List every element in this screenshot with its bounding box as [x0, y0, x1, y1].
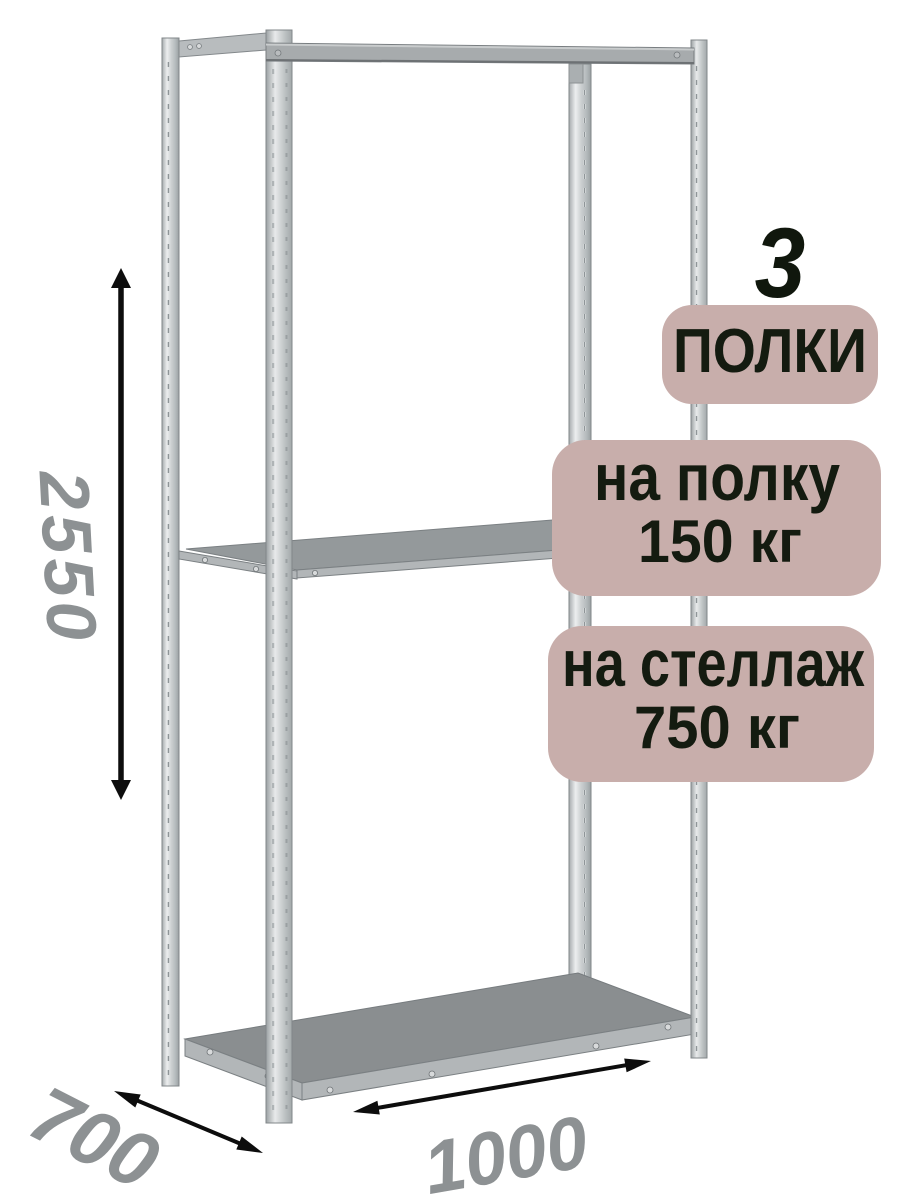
svg-text:на полку: на полку [594, 440, 840, 514]
svg-text:2550: 2550 [24, 467, 111, 647]
svg-text:на стеллаж: на стеллаж [562, 626, 865, 700]
svg-text:3: 3 [755, 209, 806, 319]
svg-text:150 кг: 150 кг [638, 508, 802, 575]
svg-text:ПОЛКИ: ПОЛКИ [673, 317, 867, 386]
svg-text:750 кг: 750 кг [634, 694, 800, 761]
